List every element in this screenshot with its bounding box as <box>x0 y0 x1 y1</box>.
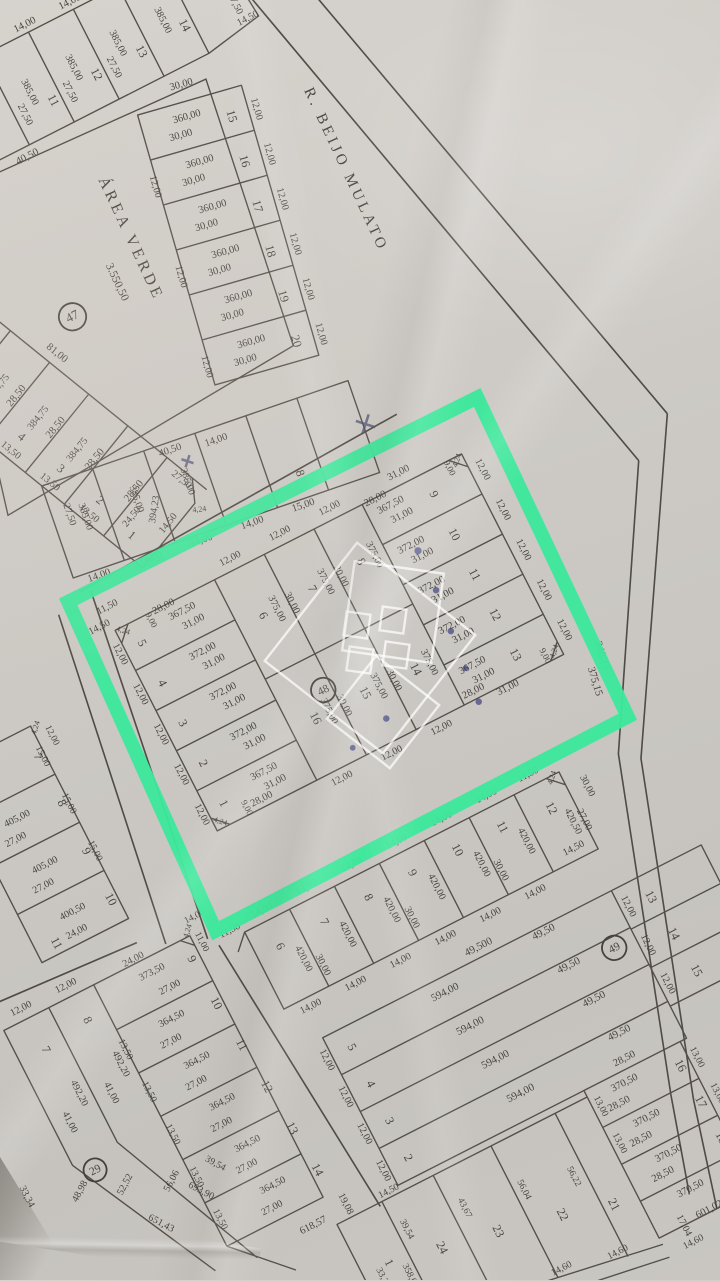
map-label: 19 <box>275 288 292 304</box>
map-label: 420,00 <box>380 895 402 925</box>
map-label: 3 <box>54 461 68 476</box>
map-label: 385,00 <box>107 28 129 58</box>
map-label: 47 <box>63 306 82 325</box>
map-label: 20 <box>288 333 305 349</box>
map-label: 364,50 <box>182 1049 212 1071</box>
map-label: 12,00 <box>173 264 190 289</box>
map-label: 2 <box>196 757 211 769</box>
map-label: 11,50 <box>95 597 120 617</box>
map-label: 9 <box>405 867 420 879</box>
map-label: 4,24 <box>192 504 207 514</box>
map-label: 14,00 <box>12 15 38 35</box>
map-label: 24,00 <box>121 950 146 970</box>
map-label: 373,50 <box>137 961 167 983</box>
map-label: 27,00 <box>31 876 56 896</box>
map-label: 49 <box>607 940 623 956</box>
map-label: 30,00 <box>168 127 194 144</box>
map-label: 15,00 <box>33 744 53 769</box>
map-label: 405,00 <box>30 854 60 876</box>
map-label: 12,00 <box>618 894 638 919</box>
map-label: 30,00 <box>207 262 233 279</box>
map-label: 4,24 <box>29 720 42 736</box>
map-label: 12,00 <box>8 999 33 1019</box>
map-label: 12,00 <box>218 549 243 569</box>
map-label: 12 <box>486 606 504 623</box>
map-label: 28,50 <box>650 1164 676 1184</box>
map-label: 27,00 <box>260 1198 285 1218</box>
map-label: 15,00 <box>59 791 79 816</box>
map-label: 8 <box>80 1014 95 1026</box>
map-label: 3 <box>175 717 190 729</box>
map-label: 10 <box>208 994 226 1011</box>
map-label: 13,00 <box>610 1131 630 1156</box>
map-label: 12,00 <box>317 498 342 518</box>
map-label: 30,00 <box>491 858 511 883</box>
map-label: 5 <box>135 637 150 649</box>
block-quadra47-leftcolumn: 13,5013,5013,5013,5013,5013,50384,75384,… <box>0 253 229 577</box>
map-label: 12,00 <box>472 457 492 482</box>
map-label: 420,00 <box>515 826 537 856</box>
map-label: 364,50 <box>157 1008 187 1030</box>
map-label: 19,08 <box>335 1191 355 1216</box>
map-label: 29 <box>87 1162 103 1178</box>
map-label: 12,00 <box>42 724 61 748</box>
map-label: 48 <box>316 682 332 698</box>
map-label: 2 <box>401 1152 416 1164</box>
map-label: 3.550,50 <box>103 261 131 303</box>
block-west: 7891011405,00405,00400,5027,0027,0024,00… <box>0 713 146 962</box>
map-label: 27,00 <box>158 1031 183 1051</box>
map-label: 12,00 <box>267 523 292 543</box>
map-label: 28,50 <box>628 1129 654 1149</box>
map-label: 48,98 <box>70 1179 90 1204</box>
map-label: 49,500 <box>463 935 495 959</box>
map-label: 420,00 <box>336 919 358 949</box>
map-label: 11 <box>494 819 512 836</box>
map-label: 12,00 <box>493 497 513 522</box>
map-label: 11 <box>48 935 66 952</box>
map-label: 618,57 <box>298 1214 329 1237</box>
map-label: 10 <box>449 841 467 858</box>
map-label: 4 <box>363 1078 378 1090</box>
map-label: 12 <box>258 1078 276 1095</box>
map-label: 16 <box>236 153 253 169</box>
map-label: 9 <box>426 488 441 500</box>
map-label: 651,43 <box>146 1212 176 1235</box>
map-label: 30,00 <box>169 76 195 93</box>
map-label: 30,00 <box>220 307 246 324</box>
map-label: 27,00 <box>3 830 28 850</box>
map-label: 364,50 <box>207 1091 237 1113</box>
map-label: 13,00 <box>687 1045 707 1070</box>
map-label: 33,34 <box>17 1184 37 1209</box>
map-label: 41,00 <box>60 1110 80 1135</box>
map-label: 12,00 <box>53 976 78 996</box>
block-south-row: 11,5014,0014,0014,0014,0014,0014,0011,50… <box>216 746 627 1034</box>
map-label: 11 <box>466 566 484 583</box>
map-label: 360,00 <box>197 198 228 216</box>
map-label: 17,04 <box>674 1213 694 1238</box>
map-label: 52,52 <box>115 1172 135 1197</box>
map-label: 24 <box>433 1239 451 1256</box>
map-label: 56,06 <box>162 1168 182 1193</box>
map-label: 601,02 <box>694 1198 720 1221</box>
map-label: 17 <box>249 198 266 214</box>
map-label: 14,00 <box>203 431 229 449</box>
map-label: 420,00 <box>425 872 447 902</box>
map-label: 4 <box>15 429 29 444</box>
map-label: 13,50 <box>210 1207 230 1232</box>
map-label: 27,00 <box>234 1156 259 1176</box>
map-label: 12,00 <box>198 354 215 379</box>
block-quadra47-rightcolumn: 30,00151617181920360,00360,00360,00360,0… <box>123 60 331 387</box>
map-label: 420,00 <box>292 944 314 974</box>
map-label: 10 <box>102 891 120 908</box>
map-label: 360,00 <box>184 153 215 171</box>
map-label: 14 <box>309 1161 327 1178</box>
watermark-logo <box>265 543 476 768</box>
map-label: 31,00 <box>495 678 521 698</box>
map-label: 9 <box>184 953 199 965</box>
map-label: 30,00 <box>194 217 220 234</box>
map-label: 4,24 <box>545 770 558 786</box>
map-label: 360,00 <box>210 243 241 261</box>
map-label: 21 <box>605 1196 623 1213</box>
map-label: 1 <box>216 797 231 809</box>
map-label: 7 <box>39 1043 54 1055</box>
map-label: 41,00 <box>101 1080 121 1105</box>
map-label: 6 <box>256 610 271 622</box>
map-label: 12,00 <box>513 537 533 562</box>
map-label: 15 <box>224 108 241 124</box>
map-label: 14,50 <box>561 838 586 858</box>
map-label: 594,00 <box>505 1081 537 1105</box>
map-label: 15,00 <box>85 839 105 864</box>
map-label: 1 <box>125 528 139 543</box>
map-label: 30,00 <box>577 773 597 798</box>
map-label: 49,50 <box>530 921 557 943</box>
map-label: 594,00 <box>479 1047 511 1071</box>
map-label: 27,00 <box>184 1073 209 1093</box>
map-label: 33,27 <box>373 1266 392 1280</box>
map-label: 360,00 <box>172 108 203 126</box>
map-label: 27,00 <box>157 978 182 998</box>
map-label: 49,50 <box>555 955 582 977</box>
map-label: 18 <box>262 243 279 259</box>
map-label: 27,00 <box>209 1115 234 1135</box>
map-label: 3 <box>382 1115 397 1127</box>
block-quadra47-toprow: 14,0014,0014,0014,0014,0027,50385,0027,5… <box>0 0 271 205</box>
map-label: 364,50 <box>258 1174 288 1196</box>
map-label: 28,50 <box>4 383 29 409</box>
map-label: 360,00 <box>223 288 254 306</box>
map-label: 15,00 <box>291 497 317 515</box>
map-label: 12,00 <box>638 932 658 957</box>
block-quadra47-bottomrow: 40,5014,0027,50385,00385,00385,00814,001… <box>42 381 384 590</box>
map-label: 12,00 <box>534 577 554 602</box>
map-label: 28,00 <box>461 681 487 701</box>
map-label: 30,00 <box>402 905 422 930</box>
map-label: 49,50 <box>580 988 607 1010</box>
map-label: 6 <box>273 940 288 952</box>
map-label: 400,50 <box>58 901 88 923</box>
map-label: 28,50 <box>43 414 68 440</box>
map-label: 405,00 <box>2 808 32 830</box>
map-label: 385,00 <box>178 467 197 497</box>
map-label: 31,00 <box>386 463 412 483</box>
map-label: 43,67 <box>455 1196 474 1220</box>
highlight-rectangle <box>52 394 639 930</box>
map-label: 594,00 <box>454 1014 486 1038</box>
map-label: 24,00 <box>64 922 89 942</box>
map-label: 30,00 <box>233 352 259 369</box>
map-label: 4 <box>155 677 170 689</box>
map-label: 12 <box>543 799 561 816</box>
map-label: 56,22 <box>564 1165 583 1189</box>
map-label: 18 <box>712 1129 720 1146</box>
map-label: 420,00 <box>470 849 492 879</box>
map-label: 13,50 <box>139 1080 159 1105</box>
map-label: 8 <box>361 891 376 903</box>
map-label: 13,50 <box>163 1122 183 1147</box>
map-label: 13 <box>283 1119 301 1136</box>
map-label: 23 <box>489 1222 507 1239</box>
map-label: 12,00 <box>147 174 164 199</box>
map-label: 13 <box>642 888 660 905</box>
map-label: 28,50 <box>611 1049 637 1069</box>
map-label: 13 <box>507 646 525 663</box>
map-label: 10 <box>445 526 463 543</box>
map-label: 360,00 <box>236 333 267 351</box>
map-label: 22 <box>554 1206 572 1223</box>
map-label: 594,00 <box>429 980 461 1004</box>
plat-map-photo: 14,0014,0014,0014,0014,0027,50385,0027,5… <box>0 0 720 1280</box>
block-quadra49: 49,50012,0012,0012,0012,005432594,00594,… <box>244 830 720 1280</box>
map-label: 5 <box>344 1041 359 1053</box>
map-label: 385,00 <box>62 53 84 83</box>
map-label: 30,00 <box>181 172 207 189</box>
map-label: 12,00 <box>554 617 574 642</box>
map-label: 11,00 <box>192 931 210 954</box>
cadastral-map-svg: 14,0014,0014,0014,0014,0027,50385,0027,5… <box>0 0 720 1280</box>
map-label: 385,00 <box>151 6 173 36</box>
map-label: 364,50 <box>233 1133 263 1155</box>
map-label: 1 <box>382 1257 397 1269</box>
map-label: 49,50 <box>606 1022 633 1044</box>
map-label: 15 <box>688 962 706 979</box>
map-label: 39,54 <box>203 1154 228 1174</box>
map-label: 14,50 <box>87 617 112 637</box>
map-label: 7 <box>317 916 332 928</box>
map-label: 30,00 <box>313 952 333 977</box>
